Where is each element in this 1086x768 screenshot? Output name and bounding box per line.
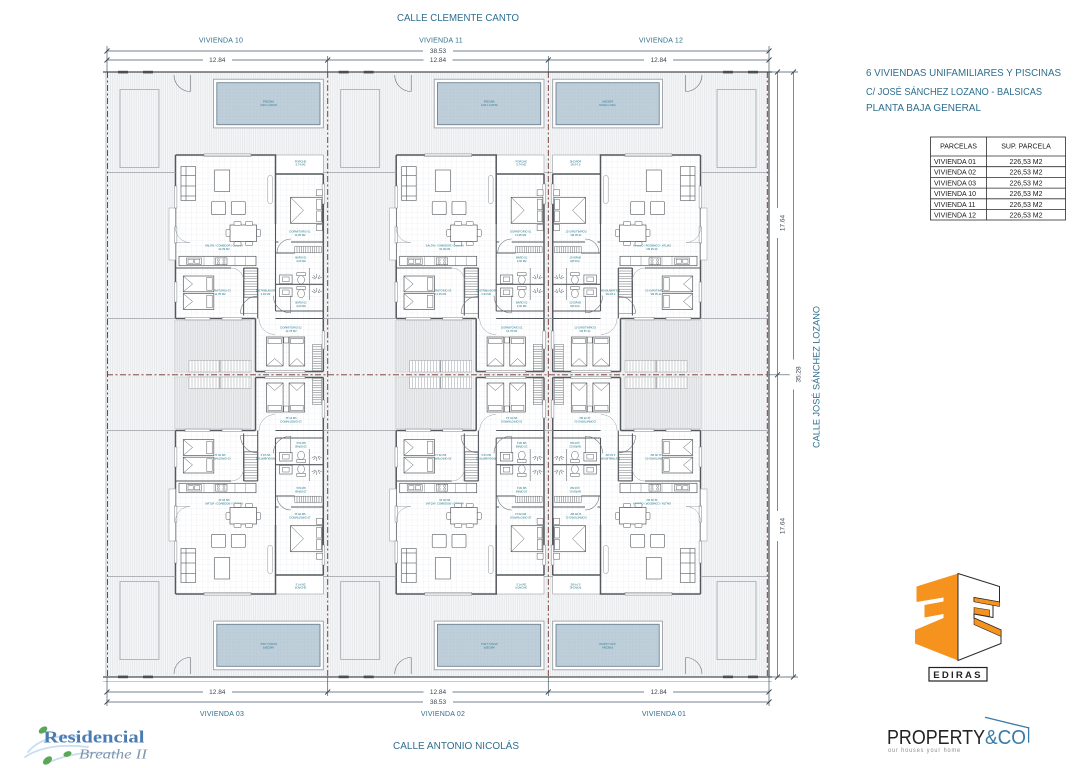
svg-text:PLANTA BAJA GENERAL: PLANTA BAJA GENERAL xyxy=(866,103,981,114)
svg-text:17.64: 17.64 xyxy=(780,517,787,534)
svg-text:VIVIENDA 03: VIVIENDA 03 xyxy=(200,711,244,718)
svg-text:VIVIENDA 12: VIVIENDA 12 xyxy=(639,38,683,45)
svg-text:17.64: 17.64 xyxy=(780,214,787,231)
svg-text:12.84: 12.84 xyxy=(209,57,226,64)
svg-text:12.84: 12.84 xyxy=(430,689,447,696)
svg-text:PARCELAS: PARCELAS xyxy=(940,144,977,151)
svg-text:CALLE ANTONIO NICOLÁS: CALLE ANTONIO NICOLÁS xyxy=(393,739,519,752)
svg-text:our houses your home: our houses your home xyxy=(888,748,961,754)
svg-text:CALLE JOSÉ SÁNCHEZ LOZANO: CALLE JOSÉ SÁNCHEZ LOZANO xyxy=(812,306,823,448)
svg-text:VIVIENDA 02: VIVIENDA 02 xyxy=(421,711,465,718)
svg-text:38.53: 38.53 xyxy=(430,699,447,706)
svg-text:12.84: 12.84 xyxy=(650,689,667,696)
svg-text:VIVIENDA 10: VIVIENDA 10 xyxy=(934,191,976,198)
svg-text:12.84: 12.84 xyxy=(650,57,667,64)
svg-text:VIVIENDA 12: VIVIENDA 12 xyxy=(934,213,976,220)
svg-text:VIVIENDA 02: VIVIENDA 02 xyxy=(934,170,976,177)
svg-text:Breathe II: Breathe II xyxy=(79,748,149,763)
svg-text:226,53 M2: 226,53 M2 xyxy=(1009,170,1042,177)
svg-text:&CO: &CO xyxy=(985,726,1026,749)
svg-text:VIVIENDA 11: VIVIENDA 11 xyxy=(419,38,463,45)
svg-text:226,53 M2: 226,53 M2 xyxy=(1009,180,1042,187)
svg-text:PROPERTY: PROPERTY xyxy=(887,726,985,749)
svg-text:226,53 M2: 226,53 M2 xyxy=(1009,202,1042,209)
svg-text:VIVIENDA 01: VIVIENDA 01 xyxy=(934,159,976,166)
svg-text:12.84: 12.84 xyxy=(209,689,226,696)
svg-text:12.84: 12.84 xyxy=(430,57,447,64)
svg-text:SUP. PARCELA: SUP. PARCELA xyxy=(1001,144,1051,151)
svg-text:VIVIENDA 03: VIVIENDA 03 xyxy=(934,180,976,187)
svg-text:VIVIENDA 01: VIVIENDA 01 xyxy=(642,711,686,718)
svg-text:CALLE CLEMENTE CANTO: CALLE CLEMENTE CANTO xyxy=(397,13,519,24)
svg-text:EDIRAS: EDIRAS xyxy=(933,670,982,681)
svg-text:226,53 M2: 226,53 M2 xyxy=(1009,159,1042,166)
svg-text:35.28: 35.28 xyxy=(796,366,803,383)
svg-text:38.53: 38.53 xyxy=(430,48,447,55)
svg-text:226,53 M2: 226,53 M2 xyxy=(1009,213,1042,220)
svg-text:6 VIVIENDAS UNIFAMILIARES Y PI: 6 VIVIENDAS UNIFAMILIARES Y PISCINAS xyxy=(866,68,1061,79)
svg-text:Residencial: Residencial xyxy=(44,728,146,747)
svg-text:VIVIENDA 11: VIVIENDA 11 xyxy=(934,202,976,209)
svg-text:VIVIENDA 10: VIVIENDA 10 xyxy=(199,38,243,45)
svg-text:226,53 M2: 226,53 M2 xyxy=(1009,191,1042,198)
svg-text:C/ JOSÉ SÁNCHEZ LOZANO - BALSI: C/ JOSÉ SÁNCHEZ LOZANO - BALSICAS xyxy=(866,85,1042,98)
